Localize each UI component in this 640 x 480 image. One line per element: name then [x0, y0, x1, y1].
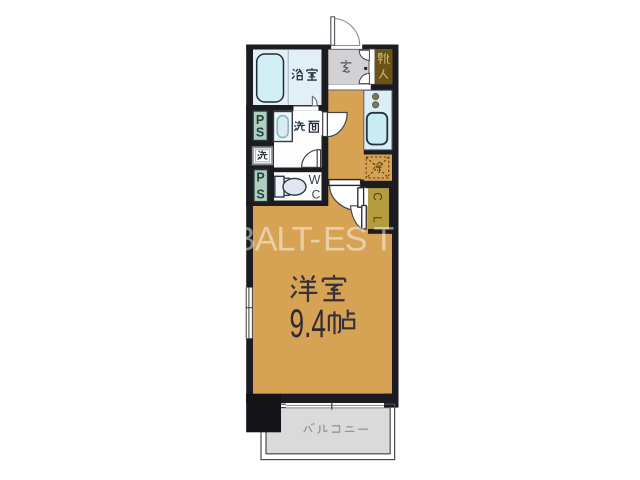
svg-text:P: P [256, 170, 264, 184]
svg-text:C: C [312, 187, 321, 201]
svg-text:W: W [309, 173, 321, 187]
svg-text:S: S [256, 187, 264, 201]
svg-text:S: S [256, 126, 264, 140]
svg-text:9.4: 9.4 [290, 302, 327, 346]
svg-text:C: C [371, 192, 383, 200]
